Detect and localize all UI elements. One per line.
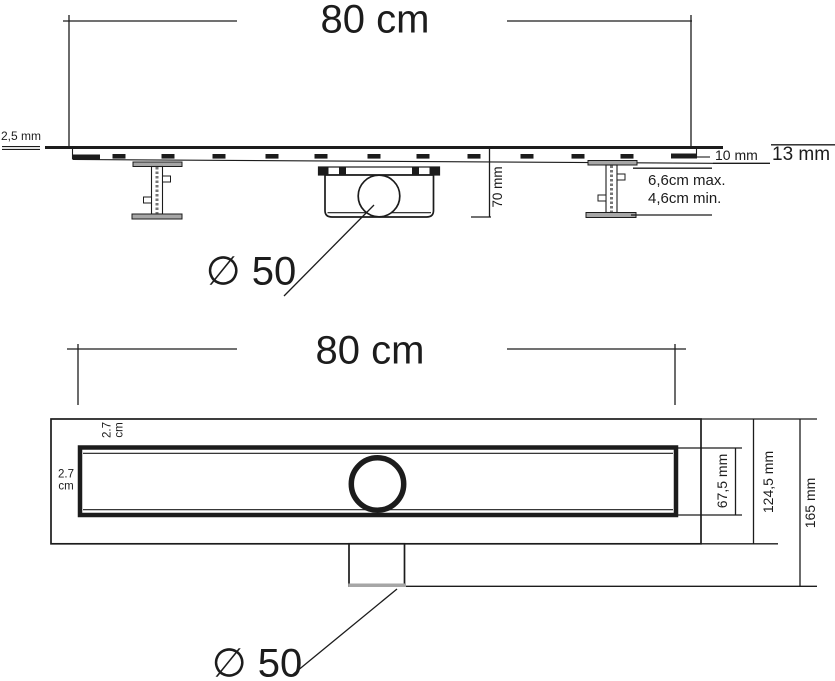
leader-diameter-plan — [291, 589, 397, 676]
outlet-spigot — [348, 544, 406, 586]
feet-min-height-label: 4,6cm min. — [648, 191, 721, 206]
plan-view-linework — [51, 344, 817, 676]
drain-outlet-ring — [351, 458, 403, 510]
grate-anchor-ticks — [73, 154, 697, 160]
siphon-trap — [319, 167, 440, 217]
plan-outlet-diameter-label: ∅ 50 — [212, 644, 302, 681]
tile-level-10mm-label: 10 mm — [715, 148, 758, 162]
plan-top-offset-value: 2.7 — [103, 422, 115, 438]
side-outlet-diameter-label: ∅ 50 — [206, 252, 296, 293]
side-width-label: 80 cm — [321, 0, 430, 40]
overall-width-label: 165 mm — [803, 478, 817, 529]
channel-outline — [80, 448, 676, 516]
grate-thickness-label: 2,5 mm — [1, 130, 41, 142]
technical-drawing-canvas: 80 cm 2,5 mm 70 mm 10 mm 13 mm 6,6cm max… — [0, 0, 835, 681]
tile-level-13mm-label: 13 mm — [772, 145, 830, 164]
trap-outlet-circle — [358, 175, 400, 217]
plan-top-offset-label: 2.7 cm — [103, 422, 126, 438]
plan-left-offset-unit: cm — [58, 481, 74, 493]
adjustable-foot-left — [132, 162, 182, 219]
leader-diameter-side — [284, 205, 374, 296]
plan-left-offset-label: 2.7 cm — [58, 470, 74, 493]
channel-width-label: 67,5 mm — [715, 454, 729, 508]
plan-width-label: 80 cm — [316, 331, 425, 372]
adjustable-foot-right — [586, 161, 637, 218]
plan-top-offset-unit: cm — [114, 422, 126, 438]
trap-height-label: 70 mm — [491, 166, 505, 207]
body-width-label: 124,5 mm — [761, 451, 775, 513]
side-view-linework — [2, 15, 835, 296]
plan-left-offset-value: 2.7 — [58, 470, 74, 482]
feet-max-height-label: 6,6cm max. — [648, 173, 726, 188]
